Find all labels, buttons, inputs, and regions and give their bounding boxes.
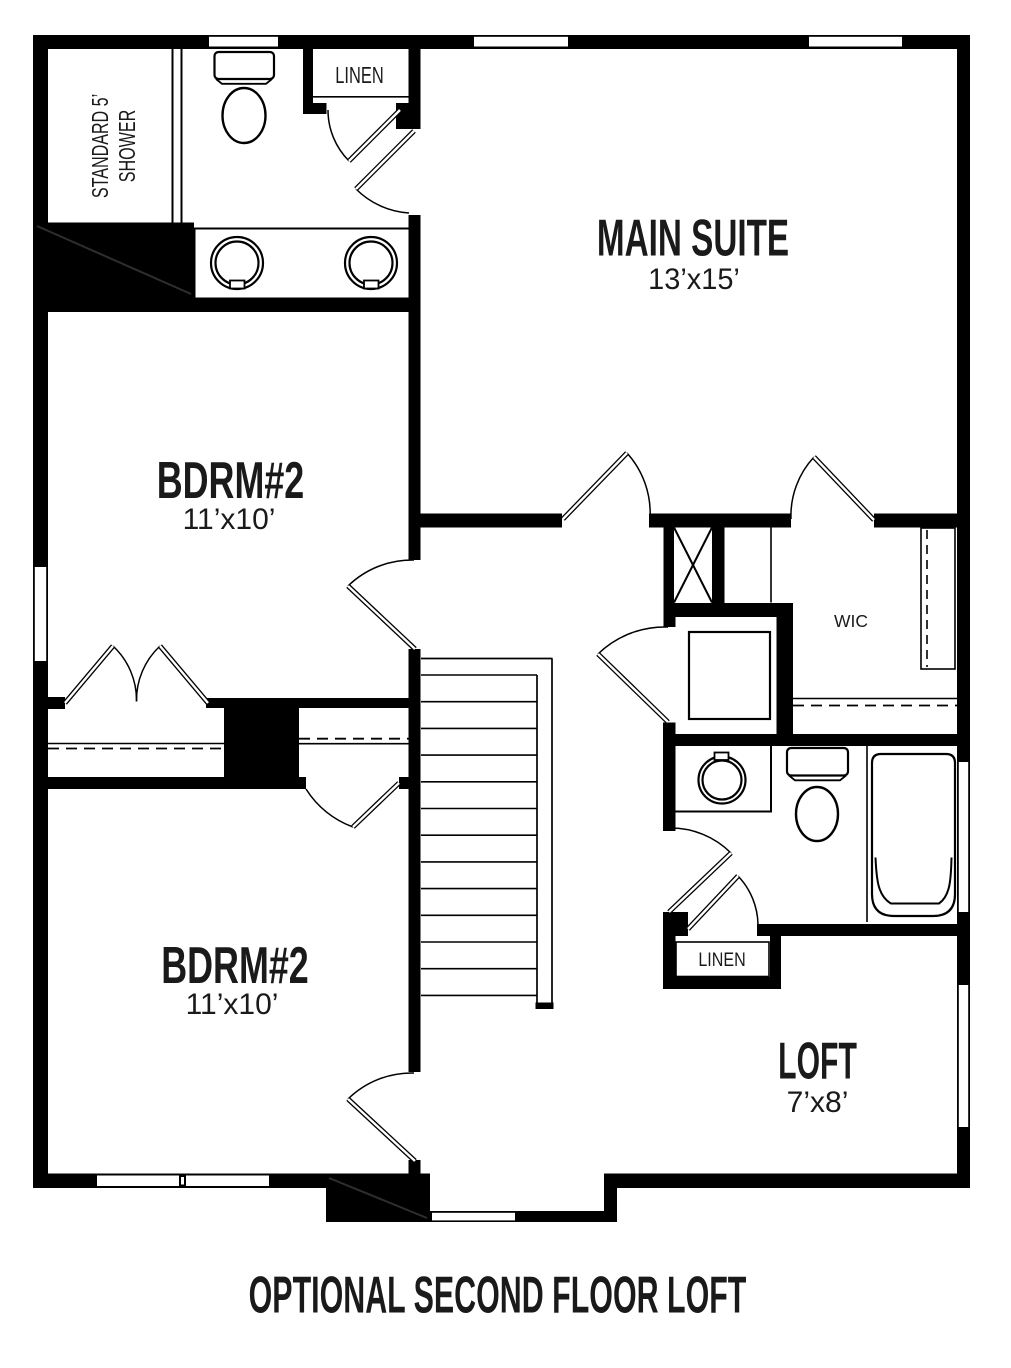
svg-text:WIC: WIC — [834, 611, 868, 631]
svg-text:LINEN: LINEN — [698, 949, 745, 971]
svg-text:OPTIONAL SECOND FLOOR LOFT: OPTIONAL SECOND FLOOR LOFT — [249, 1266, 747, 1325]
svg-text:7’x8’: 7’x8’ — [787, 1086, 849, 1119]
svg-text:BDRM#2: BDRM#2 — [161, 938, 308, 995]
svg-text:SHOWER: SHOWER — [115, 110, 140, 182]
svg-text:LINEN: LINEN — [335, 63, 383, 88]
svg-text:13’x15’: 13’x15’ — [648, 263, 740, 297]
svg-text:BDRM#2: BDRM#2 — [157, 453, 304, 510]
svg-text:MAIN SUITE: MAIN SUITE — [597, 209, 789, 267]
svg-text:11’x10’: 11’x10’ — [186, 988, 279, 1021]
svg-text:LOFT: LOFT — [778, 1033, 857, 1090]
svg-text:11’x10’: 11’x10’ — [183, 503, 276, 536]
svg-text:STANDARD 5’: STANDARD 5’ — [88, 94, 113, 198]
